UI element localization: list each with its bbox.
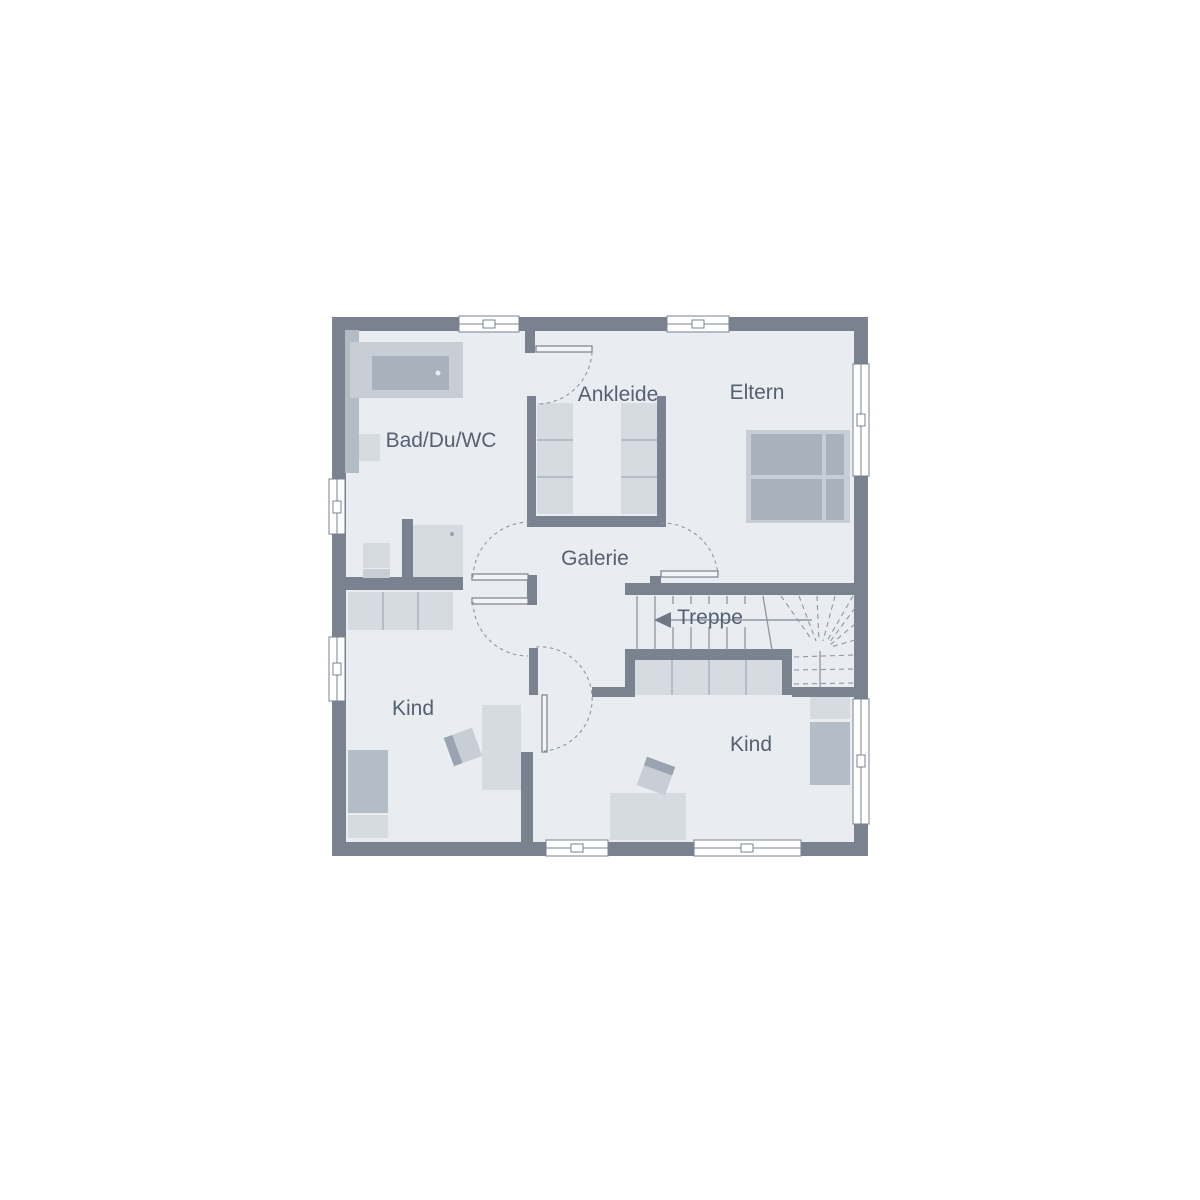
bed-pillow [826, 434, 844, 475]
washbasin [359, 434, 380, 461]
wall-between-children [521, 752, 533, 843]
wall-stair-closet-right [782, 649, 792, 695]
door-leaf-child-left [472, 598, 528, 604]
window-left-1 [329, 479, 345, 534]
wardrobe-left [537, 403, 573, 514]
room-label-child-right: Kind [730, 733, 772, 756]
window-bottom-1 [546, 840, 608, 856]
exterior-wall-left [332, 317, 346, 856]
door-leaf-parents [661, 571, 718, 577]
wall-dressing-left [527, 396, 536, 527]
room-label-bath: Bad/Du/WC [386, 429, 497, 452]
wardrobe [348, 592, 453, 630]
bed-mattress [348, 750, 388, 813]
bed-pillow [348, 815, 388, 838]
bed-mattress [751, 434, 822, 475]
window-right-2 [853, 699, 869, 824]
wall-dressing-right [657, 396, 666, 527]
window-left-2 [329, 637, 345, 701]
wall-corridor-left [529, 648, 538, 695]
window-bottom-2 [694, 840, 801, 856]
floorplan-upper-floor: Bad/Du/WC Ankleide Eltern Galerie Treppe… [0, 0, 1200, 1200]
window-top-1 [459, 316, 519, 332]
wall-stair-bottom [625, 649, 792, 660]
window-top-2 [667, 316, 729, 332]
desk [482, 705, 521, 790]
wall-stair-closet-left [625, 649, 635, 695]
bed-pillow [810, 697, 850, 719]
bed-pillow [826, 479, 844, 520]
wall-stair-top [625, 583, 856, 595]
room-label-parents: Eltern [730, 381, 785, 404]
toilet [363, 543, 390, 568]
wall-bath-bottom [344, 577, 463, 590]
wall-winder-bottom [792, 687, 856, 697]
room-label-gallery: Galerie [561, 547, 629, 570]
shower [413, 525, 463, 577]
door-leaf-dressing-entry [536, 346, 592, 352]
exterior-wall-top [332, 317, 868, 331]
desk [610, 793, 686, 840]
door-leaf-child-right [542, 695, 547, 752]
wall-shower-partition [402, 519, 413, 577]
door-leaf-bath [472, 574, 528, 580]
toilet-cistern [363, 569, 390, 578]
room-label-child-left: Kind [392, 697, 434, 720]
wall-stub-bath-top [525, 330, 535, 353]
window-right-1 [853, 364, 869, 476]
bed-mattress [810, 722, 850, 785]
room-label-dressing: Ankleide [578, 383, 659, 406]
wall-dressing-bottom [527, 516, 666, 527]
shower-drain [450, 532, 454, 536]
parents-furniture [746, 430, 850, 523]
wall-stub-parents-door [650, 576, 661, 584]
wardrobe-right [621, 403, 657, 514]
bed-mattress [751, 479, 822, 520]
bathtub-drain [436, 371, 441, 376]
room-label-stairs: Treppe [677, 606, 743, 629]
